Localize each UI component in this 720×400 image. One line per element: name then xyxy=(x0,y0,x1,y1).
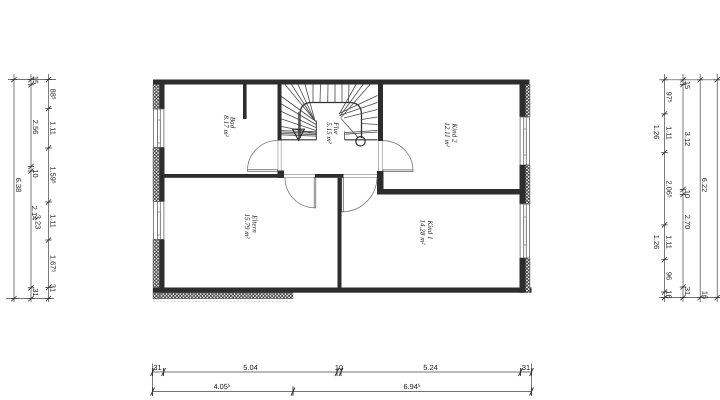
svg-text:1.26: 1.26 xyxy=(652,125,661,139)
svg-text:15.79 m²: 15.79 m² xyxy=(243,214,251,240)
svg-text:3.23: 3.23 xyxy=(34,215,43,229)
svg-text:6.22: 6.22 xyxy=(700,178,709,192)
svg-text:16: 16 xyxy=(701,291,710,299)
svg-text:2.70: 2.70 xyxy=(683,215,692,229)
svg-text:15: 15 xyxy=(31,76,40,84)
svg-text:6.38: 6.38 xyxy=(14,178,23,192)
svg-text:31: 31 xyxy=(49,284,58,292)
svg-text:10: 10 xyxy=(335,363,343,372)
svg-text:1.11: 1.11 xyxy=(49,121,58,135)
svg-text:2.56: 2.56 xyxy=(31,120,40,134)
svg-text:15: 15 xyxy=(683,81,692,89)
svg-text:1.11: 1.11 xyxy=(49,214,58,228)
svg-text:5.24: 5.24 xyxy=(423,363,437,372)
svg-text:31: 31 xyxy=(683,287,692,295)
svg-text:3.12: 3.12 xyxy=(683,132,692,146)
svg-text:12.11 m²: 12.11 m² xyxy=(443,122,451,147)
svg-text:31: 31 xyxy=(522,363,530,372)
svg-text:10: 10 xyxy=(31,169,40,177)
svg-text:10: 10 xyxy=(683,190,692,198)
svg-text:14.28 m²: 14.28 m² xyxy=(419,220,427,246)
svg-text:1.11: 1.11 xyxy=(665,235,674,249)
svg-text:5.04: 5.04 xyxy=(243,363,257,372)
svg-text:16: 16 xyxy=(665,290,674,298)
svg-text:1.11: 1.11 xyxy=(665,126,674,140)
svg-text:8.17 m²: 8.17 m² xyxy=(222,115,230,137)
svg-text:31: 31 xyxy=(31,288,40,296)
svg-text:1.26: 1.26 xyxy=(652,235,661,249)
svg-text:5.15 m²: 5.15 m² xyxy=(325,122,333,144)
svg-text:31: 31 xyxy=(153,363,161,372)
svg-text:96: 96 xyxy=(665,272,674,280)
